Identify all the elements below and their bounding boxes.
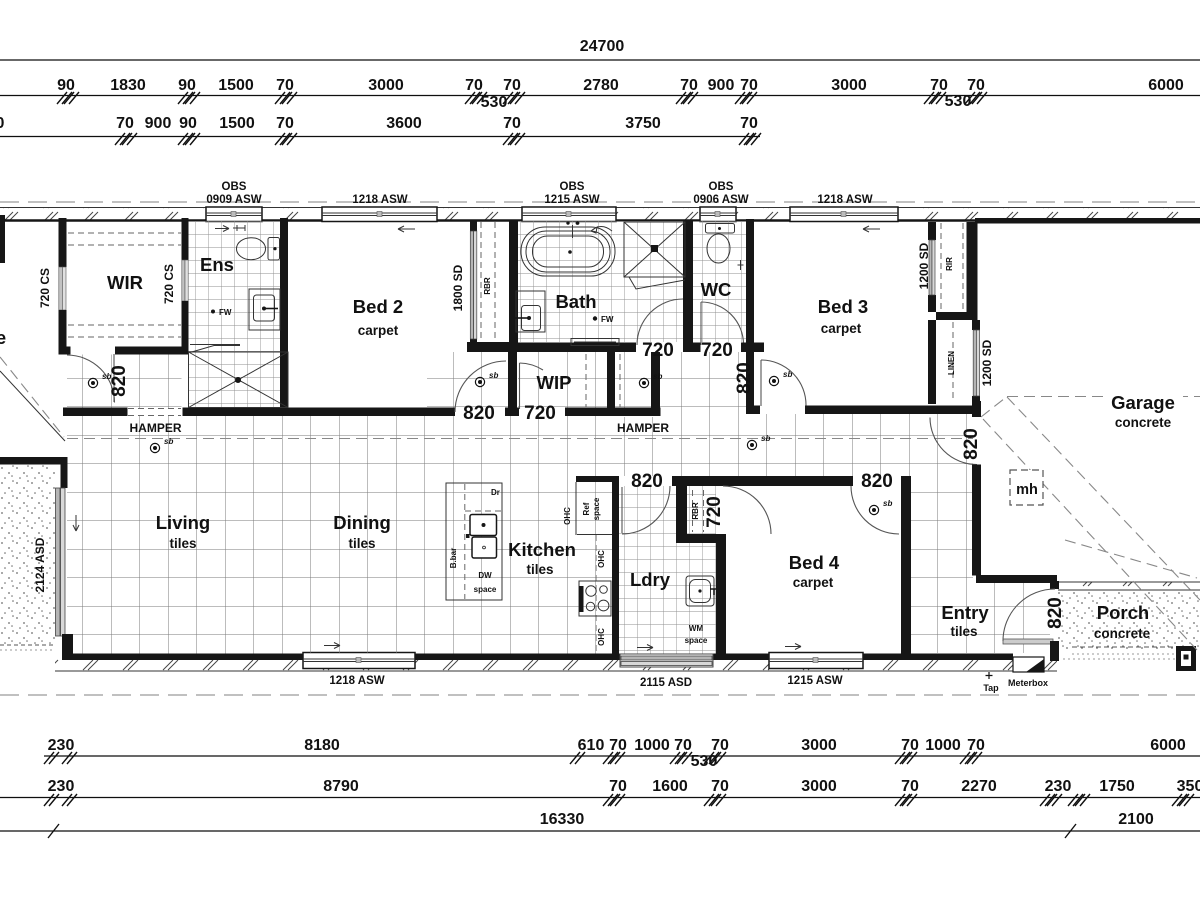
svg-text:Bath: Bath	[555, 291, 596, 312]
svg-text:WM: WM	[689, 624, 704, 633]
svg-text:1215 ASW: 1215 ASW	[544, 194, 599, 206]
svg-text:Garage: Garage	[1111, 392, 1175, 413]
svg-text:70: 70	[609, 778, 627, 795]
svg-text:LINEN: LINEN	[947, 351, 956, 375]
svg-text:tiles: tiles	[169, 536, 196, 551]
svg-text:FW: FW	[219, 308, 232, 317]
svg-text:Tap: Tap	[983, 683, 999, 693]
svg-text:FW: FW	[601, 315, 614, 324]
svg-text:820: 820	[109, 365, 130, 397]
svg-text:sb: sb	[489, 371, 498, 380]
svg-text:70: 70	[740, 115, 758, 132]
svg-text:B.bar: B.bar	[449, 548, 458, 568]
svg-text:720 CS: 720 CS	[38, 268, 52, 308]
svg-text:sb: sb	[783, 370, 792, 379]
svg-text:8180: 8180	[304, 737, 340, 754]
svg-text:820: 820	[734, 362, 755, 394]
svg-text:RIR: RIR	[945, 257, 954, 271]
svg-text:1500: 1500	[218, 77, 254, 94]
svg-text:0909 ASW: 0909 ASW	[206, 194, 261, 206]
svg-text:1800 SD: 1800 SD	[451, 264, 465, 311]
svg-text:720: 720	[524, 403, 556, 424]
svg-text:Porch: Porch	[1097, 602, 1149, 623]
svg-text:OBS: OBS	[222, 181, 247, 193]
svg-text:sb: sb	[883, 499, 892, 508]
svg-text:70: 70	[740, 77, 758, 94]
svg-text:6000: 6000	[1150, 737, 1186, 754]
svg-text:70: 70	[116, 115, 134, 132]
svg-text:e: e	[0, 327, 6, 348]
svg-text:70: 70	[680, 77, 698, 94]
svg-text:8790: 8790	[323, 778, 359, 795]
svg-text:WIR: WIR	[107, 272, 143, 293]
svg-text:90: 90	[179, 115, 197, 132]
svg-text:2780: 2780	[583, 77, 619, 94]
svg-text:sb: sb	[653, 372, 662, 381]
svg-text:sb: sb	[761, 434, 770, 443]
svg-text:carpet: carpet	[821, 321, 862, 336]
svg-text:Ref: Ref	[582, 502, 591, 515]
svg-text:Living: Living	[156, 512, 210, 533]
svg-text:HAMPER: HAMPER	[129, 421, 181, 435]
svg-text:Entry: Entry	[941, 602, 989, 623]
svg-text:1200 SD: 1200 SD	[980, 339, 994, 386]
svg-text:Meterbox: Meterbox	[1008, 678, 1048, 688]
svg-text:90: 90	[57, 77, 75, 94]
svg-text:820: 820	[463, 403, 495, 424]
svg-text:sb: sb	[164, 437, 173, 446]
svg-text:900: 900	[145, 115, 172, 132]
svg-text:1000: 1000	[925, 737, 961, 754]
svg-text:WIP: WIP	[537, 372, 572, 393]
svg-text:350: 350	[1177, 778, 1200, 795]
svg-text:720: 720	[642, 340, 674, 361]
svg-text:820: 820	[861, 471, 893, 492]
svg-text:OHC: OHC	[597, 550, 606, 568]
svg-text:1500: 1500	[219, 115, 255, 132]
svg-text:Bed 4: Bed 4	[789, 552, 840, 573]
svg-text:1200 SD: 1200 SD	[917, 242, 931, 289]
svg-text:70: 70	[503, 77, 521, 94]
svg-text:720 CS: 720 CS	[162, 264, 176, 304]
svg-text:70: 70	[967, 737, 985, 754]
svg-text:concrete: concrete	[1094, 626, 1151, 641]
svg-text:OHC: OHC	[563, 507, 572, 525]
svg-text:70: 70	[674, 737, 692, 754]
svg-text:RBR: RBR	[691, 502, 700, 520]
svg-text:mh: mh	[1016, 482, 1038, 498]
svg-text:24700: 24700	[580, 38, 625, 55]
svg-text:RBR: RBR	[483, 277, 492, 295]
svg-text:1830: 1830	[110, 77, 146, 94]
svg-text:Bed 2: Bed 2	[353, 296, 403, 317]
svg-text:1750: 1750	[1099, 778, 1135, 795]
svg-text:1218 ASW: 1218 ASW	[352, 194, 407, 206]
svg-text:70: 70	[609, 737, 627, 754]
svg-text:610: 610	[578, 737, 605, 754]
svg-text:OHC: OHC	[597, 628, 606, 646]
svg-text:70: 70	[901, 778, 919, 795]
svg-text:1218 ASW: 1218 ASW	[329, 675, 384, 687]
svg-text:70: 70	[503, 115, 521, 132]
svg-text:720: 720	[704, 496, 725, 528]
svg-text:70: 70	[276, 77, 294, 94]
svg-text:2270: 2270	[961, 778, 997, 795]
svg-text:Kitchen: Kitchen	[508, 539, 576, 560]
svg-text:0906 ASW: 0906 ASW	[693, 194, 748, 206]
svg-text:230: 230	[48, 778, 75, 795]
svg-text:820: 820	[961, 428, 982, 460]
svg-text:Dr: Dr	[491, 488, 500, 497]
svg-text:Ens: Ens	[200, 254, 234, 275]
svg-text:70: 70	[711, 778, 729, 795]
svg-text:OBS: OBS	[560, 181, 585, 193]
svg-text:3750: 3750	[625, 115, 661, 132]
svg-text:Dining: Dining	[333, 512, 391, 533]
svg-text:3000: 3000	[801, 778, 837, 795]
svg-text:70: 70	[276, 115, 294, 132]
svg-text:carpet: carpet	[793, 575, 834, 590]
svg-text:3000: 3000	[368, 77, 404, 94]
svg-text:3000: 3000	[831, 77, 867, 94]
svg-text:1000: 1000	[634, 737, 670, 754]
svg-text:HAMPER: HAMPER	[617, 421, 669, 435]
svg-text:2124 ASD: 2124 ASD	[33, 537, 47, 592]
svg-text:820: 820	[631, 471, 663, 492]
svg-text:concrete: concrete	[1115, 415, 1172, 430]
svg-text:70: 70	[967, 77, 985, 94]
svg-text:6000: 6000	[1148, 77, 1184, 94]
svg-text:820: 820	[1045, 597, 1066, 629]
svg-text:tiles: tiles	[526, 562, 553, 577]
svg-text:2115 ASD: 2115 ASD	[640, 677, 692, 689]
svg-text:70: 70	[930, 77, 948, 94]
svg-text:900: 900	[708, 77, 735, 94]
svg-text:space: space	[685, 636, 708, 645]
svg-text:3000: 3000	[801, 737, 837, 754]
svg-text:720: 720	[701, 340, 733, 361]
svg-text:Bed 3: Bed 3	[818, 296, 868, 317]
svg-text:1215 ASW: 1215 ASW	[787, 675, 842, 687]
svg-text:230: 230	[1045, 778, 1072, 795]
svg-text:70: 70	[465, 77, 483, 94]
svg-text:space: space	[592, 497, 601, 520]
svg-text:space: space	[474, 585, 497, 594]
svg-text:3600: 3600	[386, 115, 422, 132]
svg-text:WC: WC	[701, 279, 732, 300]
svg-text:1600: 1600	[652, 778, 688, 795]
svg-text:carpet: carpet	[358, 323, 399, 338]
svg-text:Ldry: Ldry	[630, 569, 671, 590]
svg-text:90: 90	[178, 77, 196, 94]
svg-text:70: 70	[711, 737, 729, 754]
svg-text:DW: DW	[478, 571, 492, 580]
svg-text:70: 70	[901, 737, 919, 754]
svg-text:OBS: OBS	[709, 181, 734, 193]
svg-text:1218 ASW: 1218 ASW	[817, 194, 872, 206]
svg-text:16330: 16330	[540, 811, 585, 828]
svg-text:tiles: tiles	[950, 624, 977, 639]
svg-text:2100: 2100	[1118, 811, 1154, 828]
svg-text:0: 0	[0, 115, 5, 132]
svg-text:230: 230	[48, 737, 75, 754]
svg-text:tiles: tiles	[348, 536, 375, 551]
